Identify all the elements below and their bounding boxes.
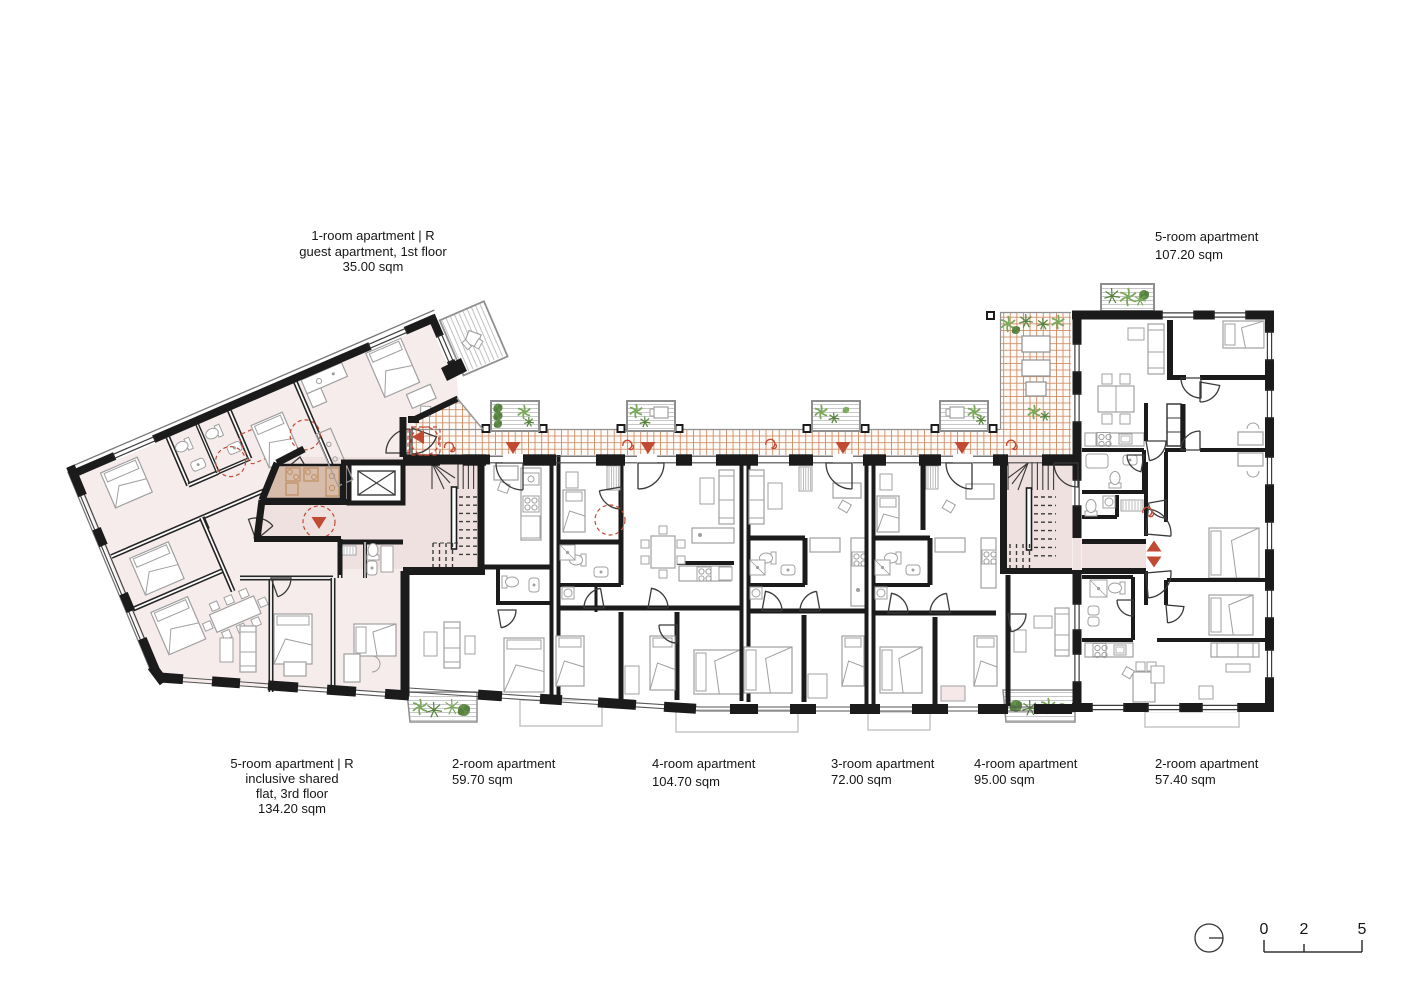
svg-text:134.20 sqm: 134.20 sqm [258,801,326,816]
svg-text:guest apartment, 1st floor: guest apartment, 1st floor [299,244,447,259]
svg-text:59.70 sqm: 59.70 sqm [452,772,513,787]
svg-text:72.00 sqm: 72.00 sqm [831,772,892,787]
svg-text:35.00 sqm: 35.00 sqm [343,259,404,274]
svg-text:5-room apartment | R: 5-room apartment | R [230,756,353,771]
svg-text:flat, 3rd floor: flat, 3rd floor [256,786,329,801]
svg-text:104.70 sqm: 104.70 sqm [652,774,720,789]
svg-text:4-room apartment: 4-room apartment [974,756,1078,771]
svg-text:5: 5 [1358,921,1367,938]
svg-text:57.40 sqm: 57.40 sqm [1155,772,1216,787]
svg-text:inclusive shared: inclusive shared [245,771,338,786]
svg-text:2-room apartment: 2-room apartment [452,756,556,771]
svg-text:0: 0 [1260,921,1269,938]
svg-text:5-room apartment: 5-room apartment [1155,229,1259,244]
svg-text:4-room apartment: 4-room apartment [652,756,756,771]
svg-text:1-room apartment | R: 1-room apartment | R [311,228,434,243]
svg-text:107.20 sqm: 107.20 sqm [1155,247,1223,262]
svg-text:2-room apartment: 2-room apartment [1155,756,1259,771]
svg-text:2: 2 [1300,921,1309,938]
svg-text:95.00 sqm: 95.00 sqm [974,772,1035,787]
svg-text:3-room apartment: 3-room apartment [831,756,935,771]
